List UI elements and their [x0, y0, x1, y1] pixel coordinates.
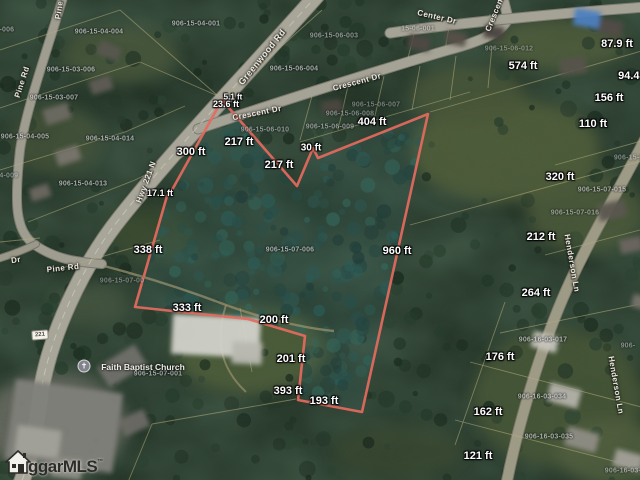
satellite-map-viewport[interactable]: 300 ft17.1 ft338 ft333 ft200 ft201 ft393… [0, 0, 640, 480]
satellite-imagery [0, 0, 640, 480]
